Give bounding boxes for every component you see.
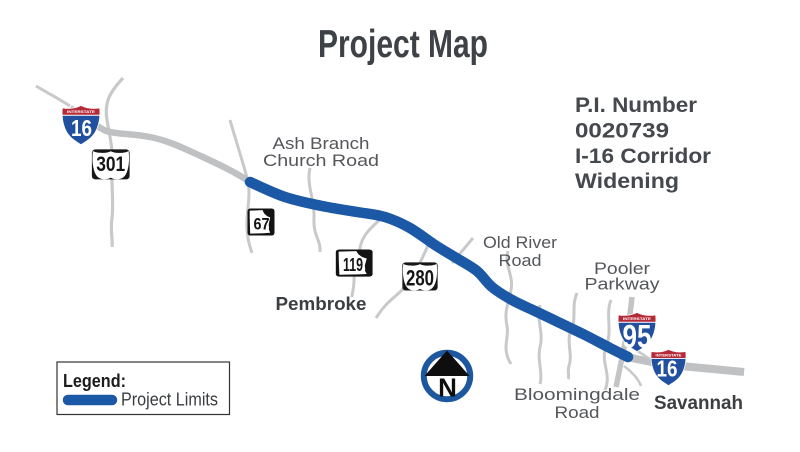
svg-text:N: N [438, 373, 457, 403]
svg-text:Project Limits: Project Limits [121, 389, 218, 410]
svg-text:16: 16 [71, 115, 92, 141]
svg-text:0020739: 0020739 [575, 119, 669, 143]
svg-text:P.I. Number: P.I. Number [575, 93, 698, 117]
svg-text:I-16 Corridor: I-16 Corridor [575, 144, 712, 168]
svg-text:67: 67 [254, 216, 270, 234]
svg-text:Road: Road [499, 251, 542, 270]
svg-text:16: 16 [657, 356, 678, 382]
svg-text:Project Map: Project Map [318, 23, 488, 66]
svg-text:280: 280 [406, 265, 434, 290]
svg-text:Legend:: Legend: [63, 370, 126, 391]
svg-text:Parkway: Parkway [585, 275, 661, 294]
svg-text:Bloomingdale: Bloomingdale [514, 385, 640, 404]
svg-text:Church Road: Church Road [263, 151, 379, 170]
svg-text:Road: Road [555, 403, 600, 422]
svg-text:Savannah: Savannah [654, 393, 743, 414]
svg-text:Pembroke: Pembroke [276, 293, 367, 314]
svg-text:119: 119 [343, 255, 363, 275]
svg-text:95: 95 [623, 319, 652, 355]
svg-text:Widening: Widening [575, 169, 679, 193]
svg-text:301: 301 [96, 153, 125, 176]
svg-text:Old River: Old River [483, 233, 557, 252]
